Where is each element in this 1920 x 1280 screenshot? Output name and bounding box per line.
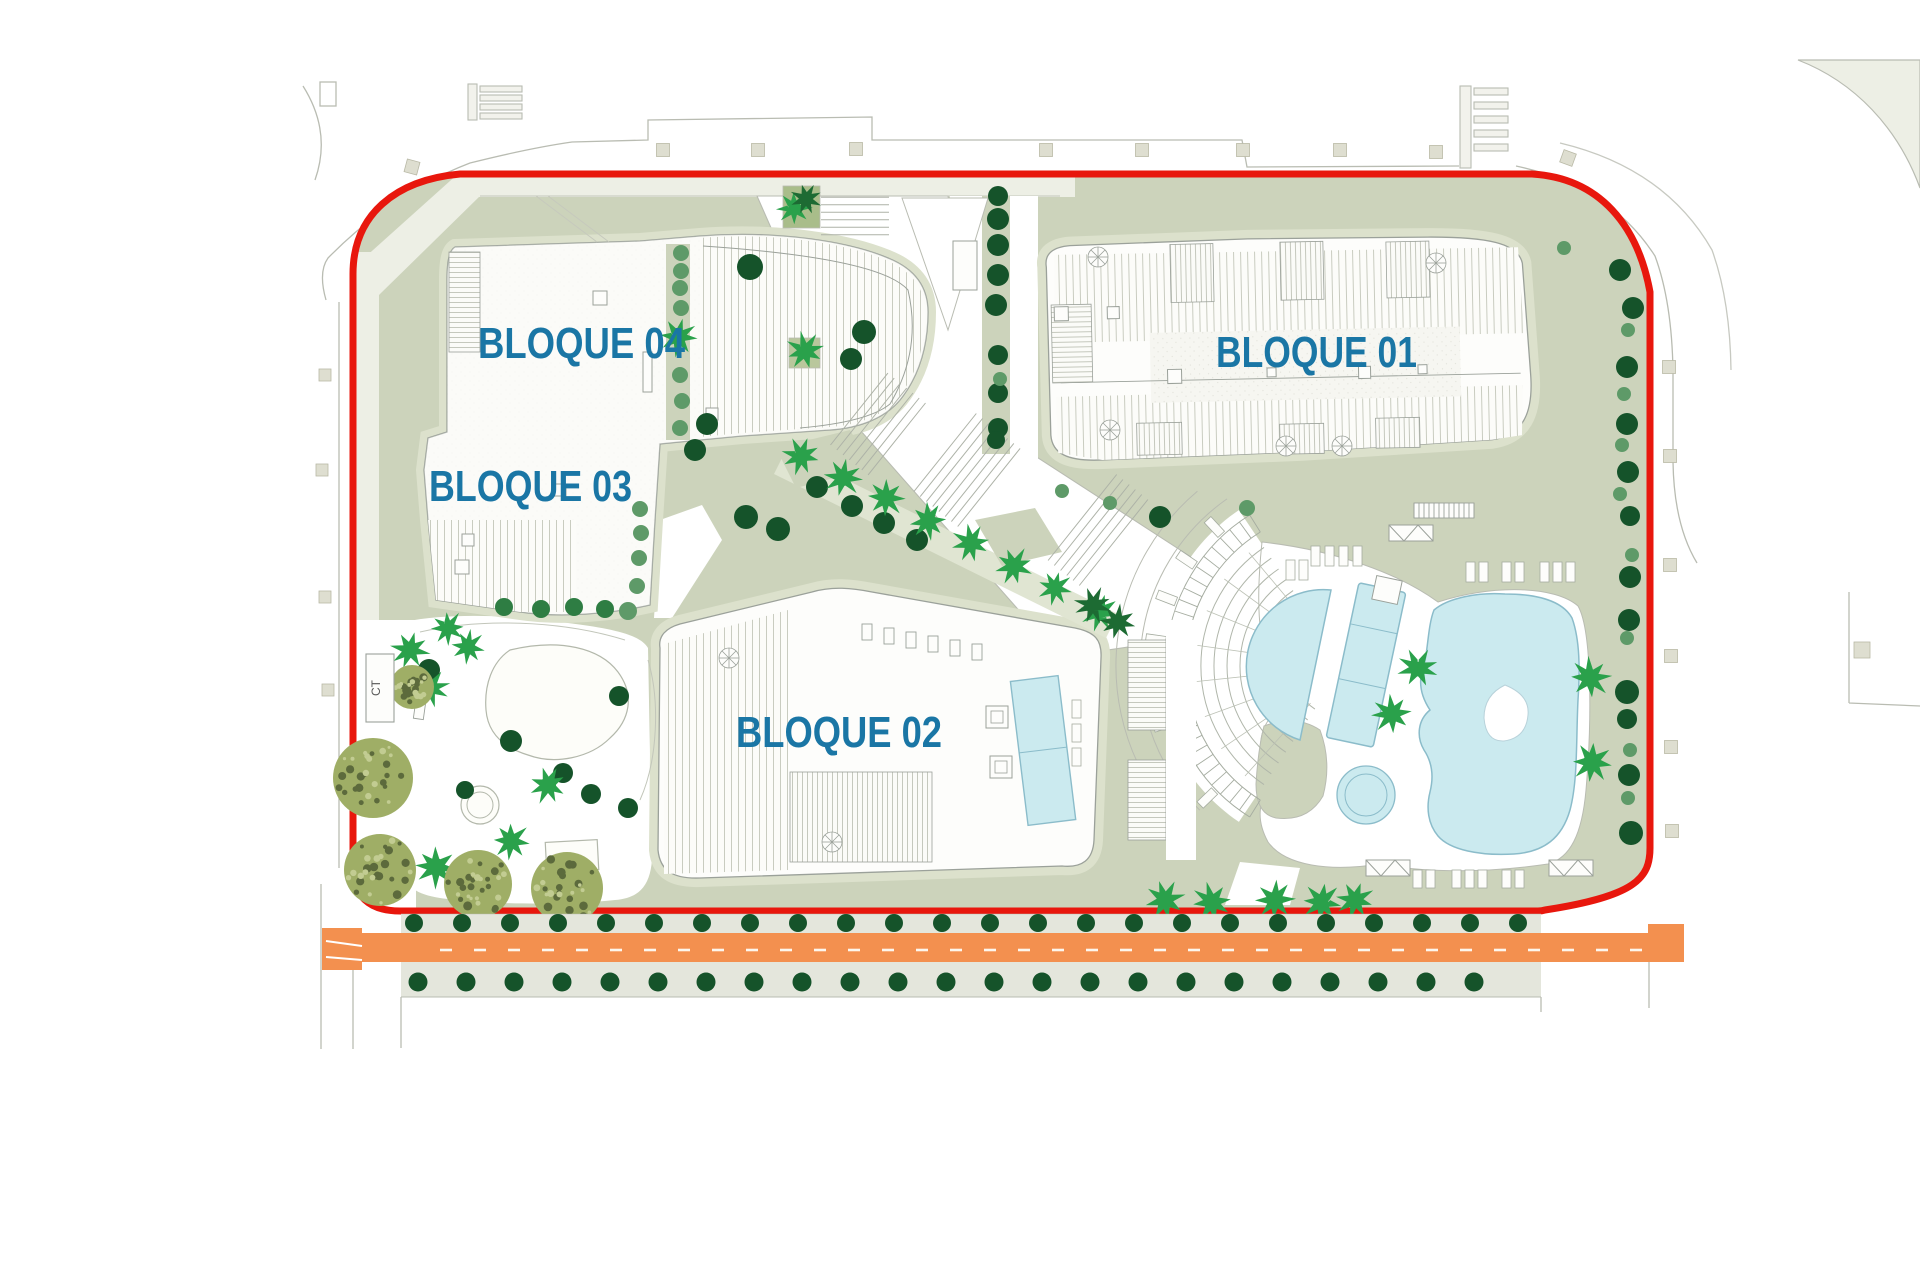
svg-text:BLOQUE 01: BLOQUE 01 [1216,328,1417,377]
svg-text:BLOQUE 02: BLOQUE 02 [736,708,942,757]
svg-text:BLOQUE 04: BLOQUE 04 [478,319,685,368]
svg-text:BLOQUE 03: BLOQUE 03 [429,462,632,511]
svg-text:CT: CT [369,679,383,696]
